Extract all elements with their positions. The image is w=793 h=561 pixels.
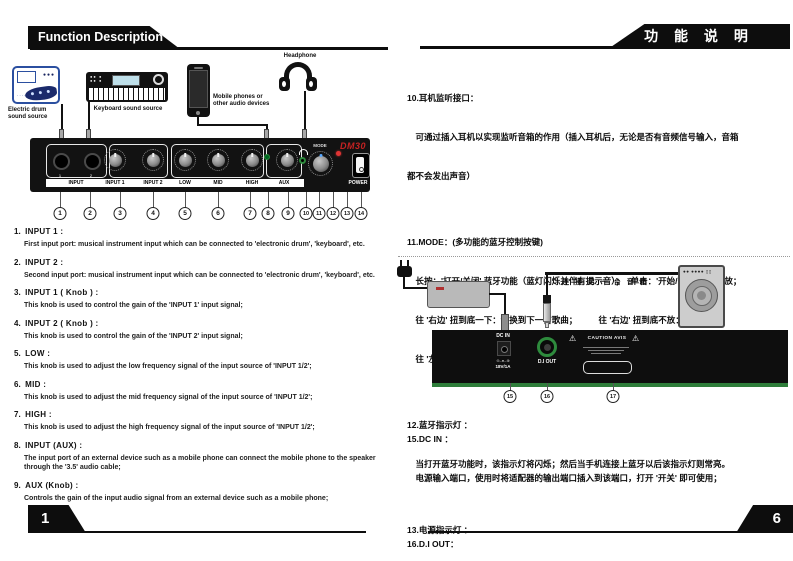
leader-line [153,192,154,208]
callout-11: 11 [313,207,326,220]
warning-triangle-icon: ⚠ [632,334,639,343]
callout-17: 17 [607,390,620,403]
power-led [336,151,341,156]
headphone-cable [304,91,306,130]
phone-speaker [194,67,203,69]
page-title-cn: 功 能 说 明 [644,28,754,44]
headphone-cup-left [279,77,290,91]
high-label: HIGH [246,180,259,186]
rear-panel: DC IN ⊖–●–⊕ 18V/1A D.I OUT ⚠ ⚠ CAUTION A… [432,330,788,387]
speaker-cone [685,279,718,312]
left-header-banner: Function Description [28,26,180,49]
di-out-label: D.I OUT [530,359,564,365]
mobile-phone-icon [187,64,210,117]
footer-rule-left [30,531,366,533]
leader-line [306,192,307,208]
cn-section-16: 16.D.I OUT： 该端口为音箱的音频输出端口，使用时可插入音频线并连接到其… [407,512,787,561]
connect-speaker-label: 连 接 另 一 台 音 箱 [562,277,649,287]
keyboard-keys [89,88,165,100]
drum-screen [17,71,36,83]
phone-label: Mobile phones or other audio devices [213,94,277,108]
input1-knob-label: INPUT 1 [105,180,124,186]
leader-line [60,192,61,208]
manual-spread: Function Description ●●● ∙∙∙∙ ∙∙ Electri… [0,0,793,561]
callout-7: 7 [244,207,257,220]
keyboard-cable [88,101,90,130]
phone-cable-h [197,124,267,126]
right-header-banner: 功 能 说 明 [608,24,790,49]
audio-jack-tip [545,322,549,328]
list-item: 5. LOW :This knob is used to adjust the … [14,343,390,372]
plug-prong [400,260,402,267]
manual-line: 都不会发出声音） [407,170,787,183]
manual-line: 16.D.I OUT： [407,538,787,551]
headphone-jack-icon [299,149,308,155]
audio-jack-collar [543,295,551,303]
dc-in-jack [497,341,511,356]
keyboard-screen [112,75,140,86]
leader-line [90,192,91,208]
phone-screen [189,70,208,108]
jack2-number: 2 [90,173,92,178]
callout-15: 15 [504,390,517,403]
mid-label: MID [213,180,222,186]
phone-home-button [196,111,200,115]
headphone-jack [299,157,306,164]
manual-line: 11.MODE：(多功能的蓝牙控制按键) [407,236,787,249]
leader-line [268,192,269,208]
cn-section-10: 10.耳机监听接口： 可通过插入耳机以实现监听音箱的作用（插入耳机后，无论是否有… [407,66,787,209]
right-page-number: 6 [773,510,781,527]
mode-label: MODE [313,143,327,148]
list-item: 8. INPUT (AUX) :The input port of an ext… [14,435,390,473]
input1-gain-knob [104,149,126,171]
manual-line: 15.DC IN ： [407,433,787,446]
leader-line [218,192,219,208]
panel-label-strip [46,179,304,187]
header-rule [30,47,388,50]
input2-knob-label: INPUT 2 [143,180,162,186]
callout-14: 14 [355,207,368,220]
left-page-number-tab: 1 [28,505,86,533]
callout-16: 16 [541,390,554,403]
aux-knob [276,149,298,171]
callout-12: 12 [327,207,340,220]
keyboard-icon: ●● ●●● ● [86,72,168,102]
second-speaker-icon: ●● ●●●● ▯▯ [678,265,725,328]
leader-line [250,192,251,208]
callout-3: 3 [114,207,127,220]
leader-line [347,192,348,208]
mode-knob [308,151,333,176]
brand-logo: DM30 [340,141,366,151]
keyboard-label: Keyboard sound source [86,106,170,113]
adapter-led [436,287,444,290]
power-plug-icon [397,266,412,277]
mid-knob [207,149,229,171]
power-switch [352,153,370,178]
low-knob [174,149,196,171]
manual-line: 电源输入端口，使用时将适配器的输出端口插入到该端口，打开 '开关' 即可使用； [407,472,787,485]
manual-line: 往 '右边' 扭到底一下：切换到下一首歌曲； 往 '右边' 扭到底不放：音量增加… [407,314,787,327]
callout-13: 13 [341,207,354,220]
leader-line [185,192,186,208]
polarity-symbol: ⊖–●–⊕ [484,358,522,363]
footer-rule-right [428,531,738,533]
leader-line [319,192,320,208]
drum-buttons: ●●● [43,72,55,78]
drum-label: Electric drum sound source [8,107,68,121]
di-out-jack [537,337,557,357]
dotted-divider [398,256,790,257]
list-item: 9. AUX (Knob) :Controls the gain of the … [14,475,390,504]
callout-5: 5 [179,207,192,220]
leader-line [333,192,334,208]
leader-line [120,192,121,208]
jack1-number: 1 [59,173,61,178]
speaker-knobs: ●● ●●●● ▯▯ [683,269,712,275]
electric-drum-icon: ●●● ∙∙∙∙ ∙∙ [12,66,60,104]
audio-jack-icon [543,303,551,322]
input-group-label: INPUT [69,180,84,186]
leader-line [361,192,362,208]
callout-9: 9 [282,207,295,220]
serial-sticker-area [583,361,632,374]
input1-jack [53,153,70,170]
keyboard-knob [153,74,164,85]
header-rule-cn [420,46,616,49]
caution-fine-print [591,353,621,354]
list-item: 4. INPUT 2 ( Knob ) :This knob is used t… [14,313,390,342]
aux-label: AUX [279,180,290,186]
left-page-number: 1 [41,510,49,527]
list-item: 3. INPUT 1 ( Knob ) :This knob is used t… [14,282,390,311]
callout-10: 10 [300,207,313,220]
adapter-cord-v [504,293,506,315]
caution-fine-print [583,347,629,348]
callout-6: 6 [212,207,225,220]
cn-sections-bottom: 15.DC IN ： 电源输入端口，使用时将适配器的输出端口插入到该端口，打开 … [407,407,787,561]
caution-fine-print [588,350,624,351]
callout-4: 4 [147,207,160,220]
speaker-cable-h [545,272,678,275]
callout-2: 2 [84,207,97,220]
callout-8: 8 [262,207,275,220]
high-knob [241,149,263,171]
keyboard-buttons: ●● ●●● ● [90,75,102,83]
headphone-cup-right [306,77,317,91]
power-adapter-icon [427,281,490,308]
list-item: 7. HIGH :This knob is used to adjust the… [14,404,390,433]
drum-cable [61,104,63,130]
dc-spec-label: 18V/1A [484,364,522,369]
list-item: 6. MID :This knob is used to adjust the … [14,374,390,403]
function-list: 1. INPUT 1 :First input port: musical in… [14,221,390,505]
manual-line: 可通过插入耳机以实现监听音箱的作用（插入耳机后，无论是否有音频信号输入，音箱 [407,131,787,144]
page-title: Function Description [38,30,163,44]
dc-plug-icon [501,314,509,331]
cn-section-15: 15.DC IN ： 电源输入端口，使用时将适配器的输出端口插入到该端口，打开 … [407,407,787,511]
bluetooth-led [319,154,322,157]
leader-line [288,192,289,208]
input2-jack [84,153,101,170]
aux-led [264,154,270,160]
warning-triangle-icon: ⚠ [569,334,576,343]
speaker-cable-v [546,272,548,296]
dc-in-label: DC IN [490,333,516,339]
manual-line: 10.耳机监听接口： [407,92,787,105]
callout-1: 1 [54,207,67,220]
plug-prong [407,260,409,267]
list-item: 1. INPUT 1 :First input port: musical in… [14,221,390,250]
mixer-front-panel: 1 2 MODE INPUT INPUT 1 INPUT 2 LOW MID H… [30,138,370,192]
low-label: LOW [179,180,191,186]
caution-label: CAUTION AVIS [584,336,630,341]
plug-cord-h [404,287,428,289]
drum-pads: ∙∙∙∙ ∙∙ [17,93,34,99]
headphone-label: Headphone [278,53,322,60]
list-item: 2. INPUT 2 :Second input port: musical i… [14,252,390,281]
power-label: POWER [349,180,368,186]
input2-gain-knob [142,149,164,171]
